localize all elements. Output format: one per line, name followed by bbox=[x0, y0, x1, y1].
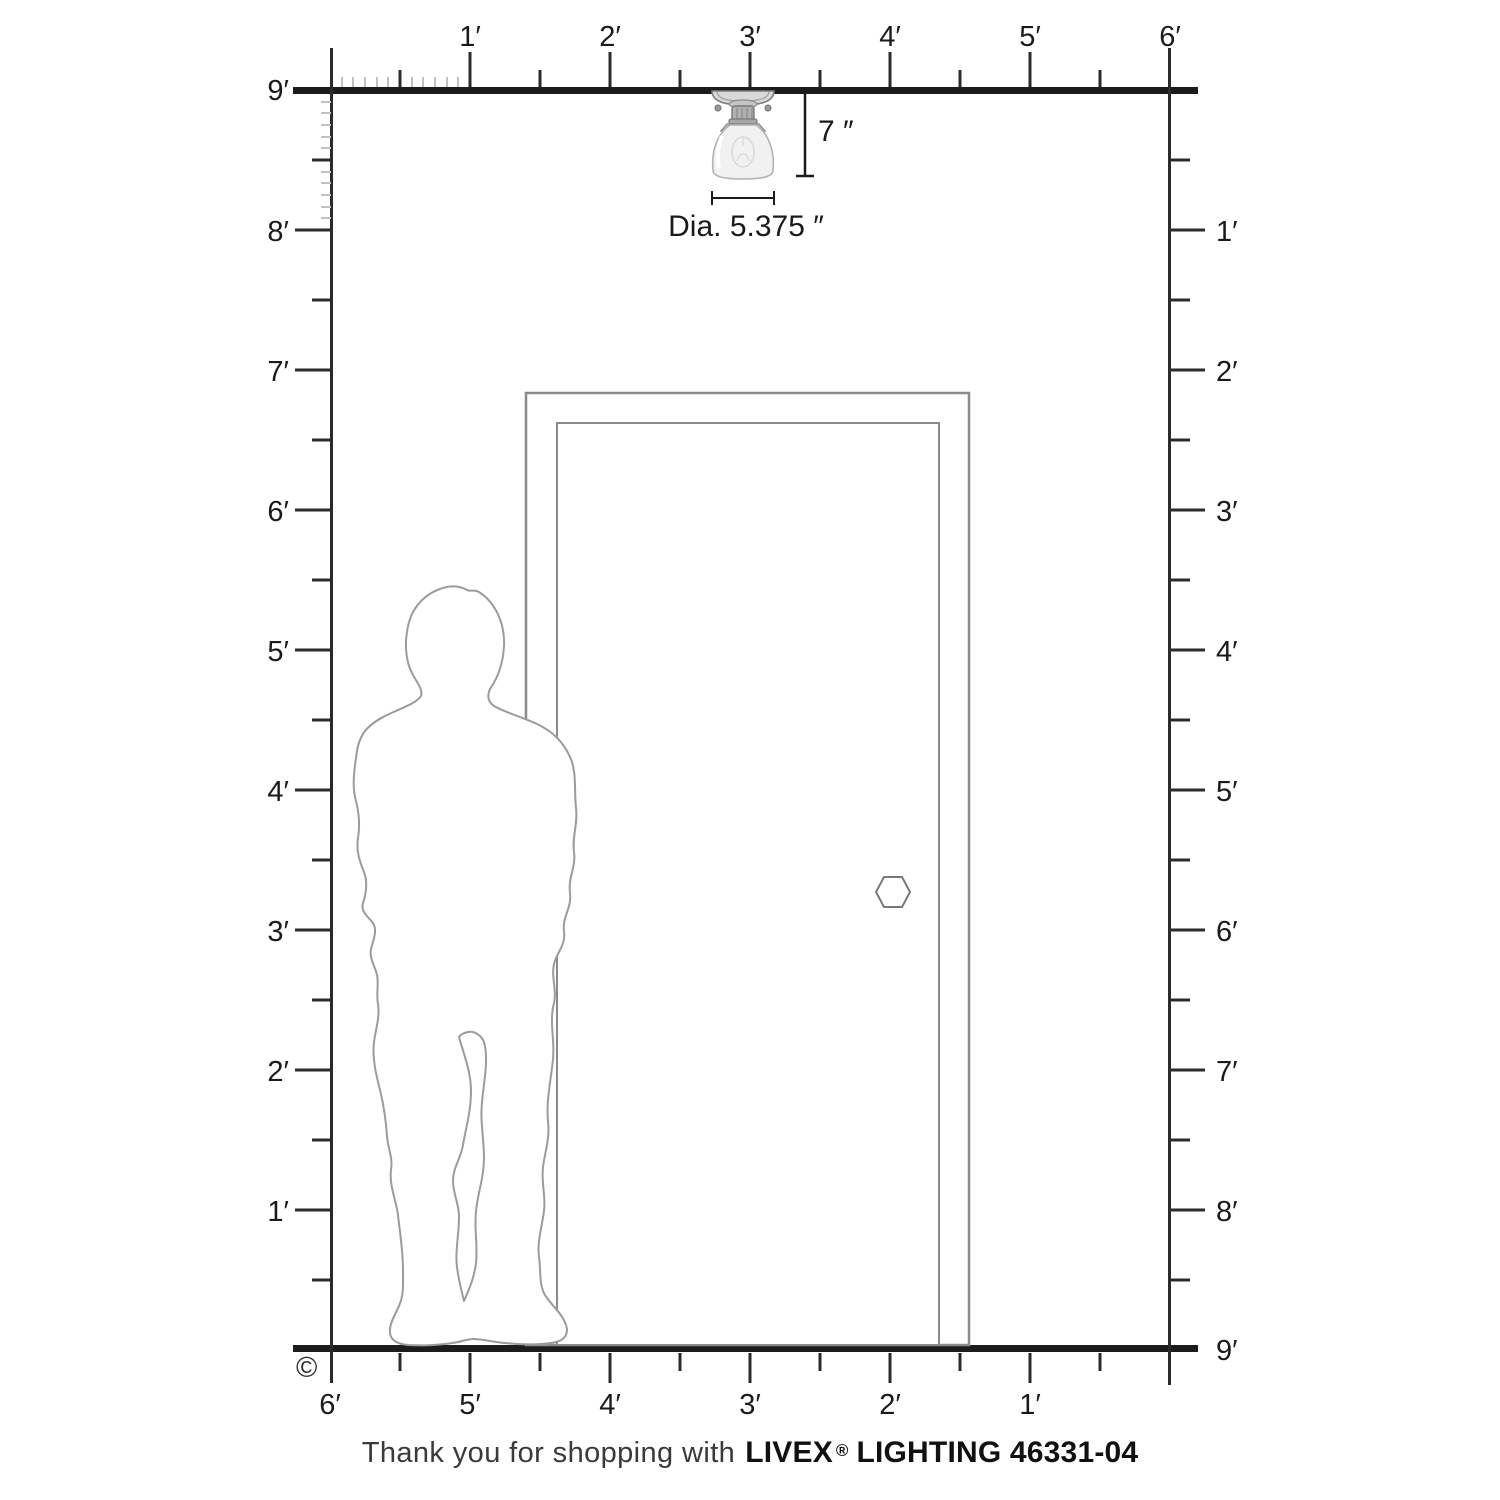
footer-product-number: LIGHTING 46331-04 bbox=[856, 1436, 1138, 1469]
ruler-label: 6′ bbox=[1159, 21, 1181, 53]
ruler-label: 5′ bbox=[1216, 776, 1238, 808]
ruler-label: 6′ bbox=[267, 496, 289, 528]
top-ruler: 1′ 2′ 3′ 4′ 5′ 6′ bbox=[342, 21, 1181, 87]
diagram-canvas: 1′ 2′ 3′ 4′ 5′ 6′ 9′ 8′ 7′ 6′ 5′ 4′ 3′ 2… bbox=[0, 0, 1500, 1500]
ruler-label: 9′ bbox=[267, 75, 289, 107]
door-illustration bbox=[526, 393, 969, 1345]
ruler-label: 8′ bbox=[267, 216, 289, 248]
footer-thanks-text: Thank you for shopping with bbox=[362, 1437, 736, 1469]
right-ruler: 1′ 2′ 3′ 4′ 5′ 6′ 7′ 8′ 9′ bbox=[1170, 160, 1238, 1367]
height-dimension-label: 7 ″ bbox=[818, 115, 854, 148]
door-knob bbox=[876, 877, 910, 907]
fixture-glass-shade bbox=[713, 125, 774, 179]
ruler-label: 2′ bbox=[599, 21, 621, 53]
ruler-label: 5′ bbox=[459, 1389, 481, 1421]
footer-message: Thank you for shopping withLIVEX®LIGHTIN… bbox=[0, 1436, 1500, 1470]
ruler-label: 1′ bbox=[1216, 216, 1238, 248]
ruler-label: 9′ bbox=[1216, 1335, 1238, 1367]
ruler-label: 8′ bbox=[1216, 1196, 1238, 1228]
ruler-label: 4′ bbox=[267, 776, 289, 808]
left-ruler: 9′ 8′ 7′ 6′ 5′ 4′ 3′ 2′ 1′ bbox=[267, 75, 331, 1280]
ruler-label: 3′ bbox=[1216, 496, 1238, 528]
ruler-label: 7′ bbox=[267, 356, 289, 388]
registered-trademark-icon: ® bbox=[836, 1441, 849, 1460]
ruler-label: 6′ bbox=[1216, 916, 1238, 948]
bottom-ruler: 6′ 5′ 4′ 3′ 2′ 1′ bbox=[319, 1353, 1100, 1421]
top-ruler-foot-ticks bbox=[470, 52, 1030, 87]
footer-brand-name: LIVEX bbox=[745, 1436, 833, 1469]
ruler-label: 3′ bbox=[739, 21, 761, 53]
copyright-symbol: © bbox=[296, 1352, 317, 1385]
ruler-label: 4′ bbox=[1216, 636, 1238, 668]
ruler-label: 7′ bbox=[1216, 1056, 1238, 1088]
ruler-label: 6′ bbox=[319, 1389, 341, 1421]
ruler-label: 5′ bbox=[267, 636, 289, 668]
ruler-label: 1′ bbox=[267, 1196, 289, 1228]
ruler-label: 2′ bbox=[879, 1389, 901, 1421]
ruler-label: 3′ bbox=[739, 1389, 761, 1421]
height-dimension: 7 ″ bbox=[796, 94, 854, 176]
ruler-label: 5′ bbox=[1019, 21, 1041, 53]
ruler-label: 4′ bbox=[599, 1389, 621, 1421]
bottom-ruler-foot-ticks bbox=[470, 1353, 1030, 1383]
ruler-label: 3′ bbox=[267, 916, 289, 948]
ceiling-light-fixture bbox=[712, 91, 774, 179]
ruler-label: 2′ bbox=[1216, 356, 1238, 388]
fixture-screw-left bbox=[715, 105, 721, 111]
ruler-label: 4′ bbox=[879, 21, 901, 53]
ruler-label: 2′ bbox=[267, 1056, 289, 1088]
diameter-dimension: Dia. 5.375 ″ bbox=[668, 191, 824, 243]
diameter-dimension-label: Dia. 5.375 ″ bbox=[668, 210, 824, 243]
size-comparison-diagram: 1′ 2′ 3′ 4′ 5′ 6′ 9′ 8′ 7′ 6′ 5′ 4′ 3′ 2… bbox=[0, 0, 1500, 1500]
fixture-screw-right bbox=[765, 105, 771, 111]
right-ruler-half-foot-ticks bbox=[1170, 160, 1190, 1280]
fixture-collar bbox=[729, 119, 757, 124]
left-ruler-half-foot-ticks bbox=[312, 160, 331, 1280]
ruler-label: 1′ bbox=[459, 21, 481, 53]
ruler-label: 1′ bbox=[1019, 1389, 1041, 1421]
